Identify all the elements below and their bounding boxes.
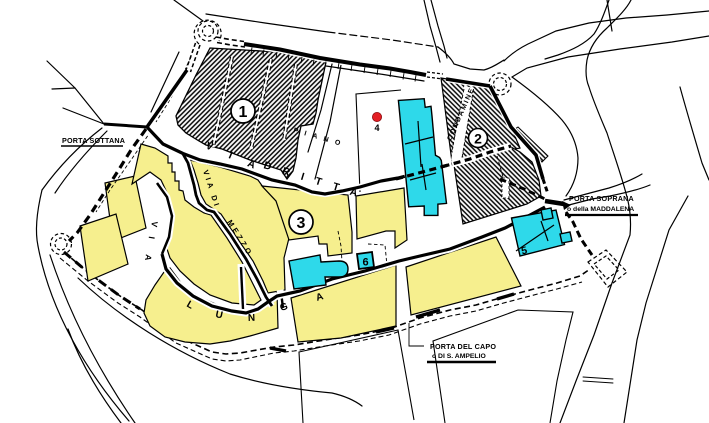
svg-text:PORTA SOTTANA: PORTA SOTTANA (62, 136, 125, 145)
svg-text:3: 3 (297, 215, 306, 232)
svg-text:PORTA SOPRANA: PORTA SOPRANA (569, 194, 634, 203)
svg-text:o della MADDALENA: o della MADDALENA (567, 206, 634, 213)
svg-text:1: 1 (239, 104, 248, 121)
svg-text:N: N (248, 313, 256, 324)
svg-text:o DI S. AMPELIO: o DI S. AMPELIO (432, 353, 486, 360)
svg-text:PORTA DEL CAPO: PORTA DEL CAPO (430, 342, 496, 351)
svg-text:2: 2 (474, 131, 482, 147)
svg-text:6: 6 (362, 257, 368, 269)
svg-text:4: 4 (374, 123, 379, 133)
